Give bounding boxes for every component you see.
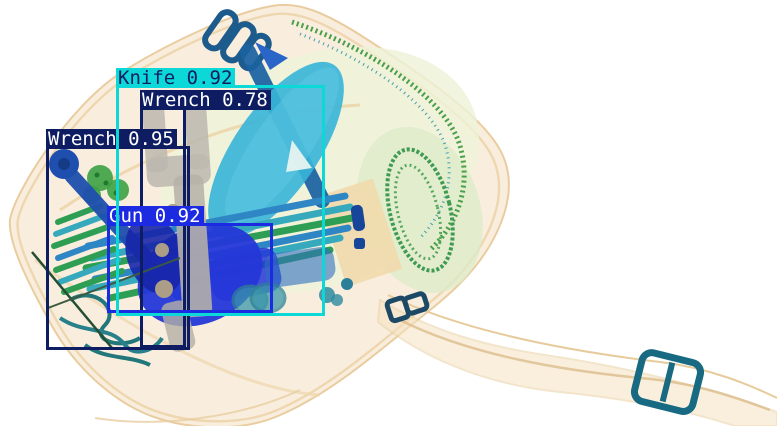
xray-scan-view: Wrench 0.78 Wrench 0.95 Gun 0.92 Knife 0… bbox=[0, 0, 777, 426]
bag-strap bbox=[378, 295, 777, 426]
xray-bag-image bbox=[0, 0, 777, 426]
